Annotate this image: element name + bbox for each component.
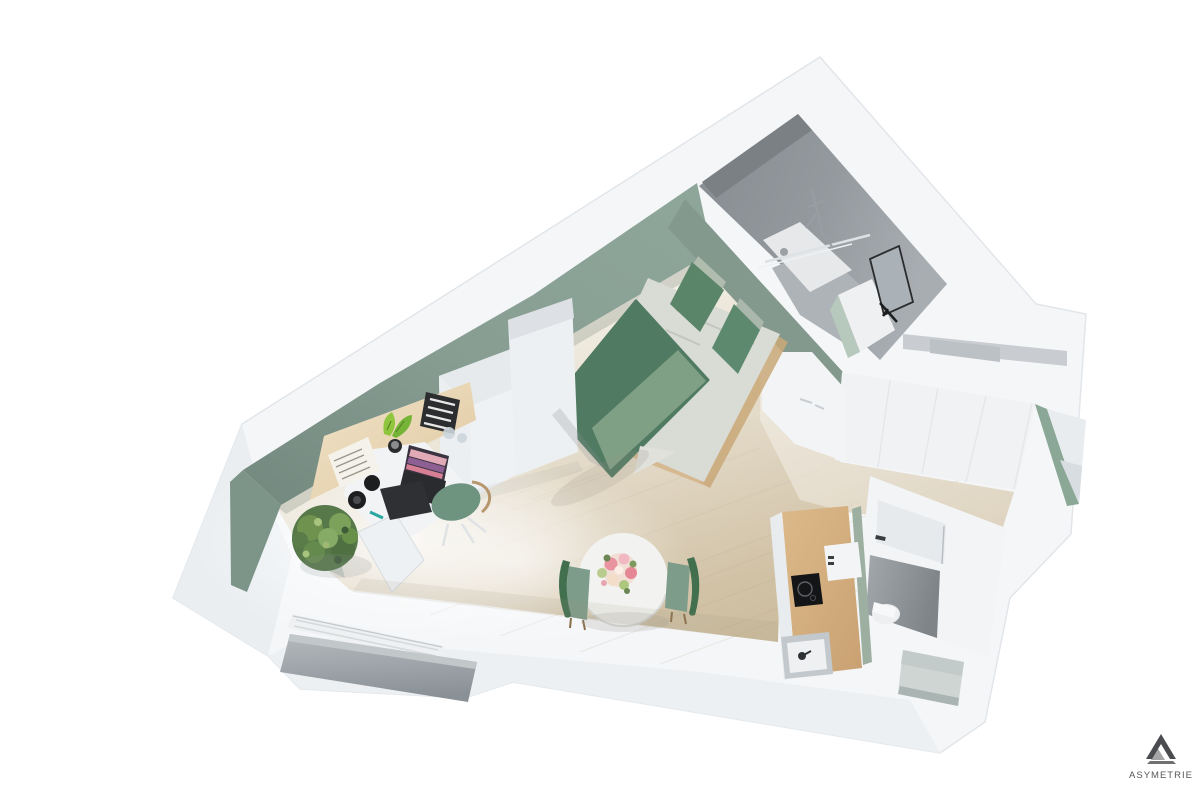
svg-text:ASYMETRIE: ASYMETRIE	[1129, 770, 1193, 781]
